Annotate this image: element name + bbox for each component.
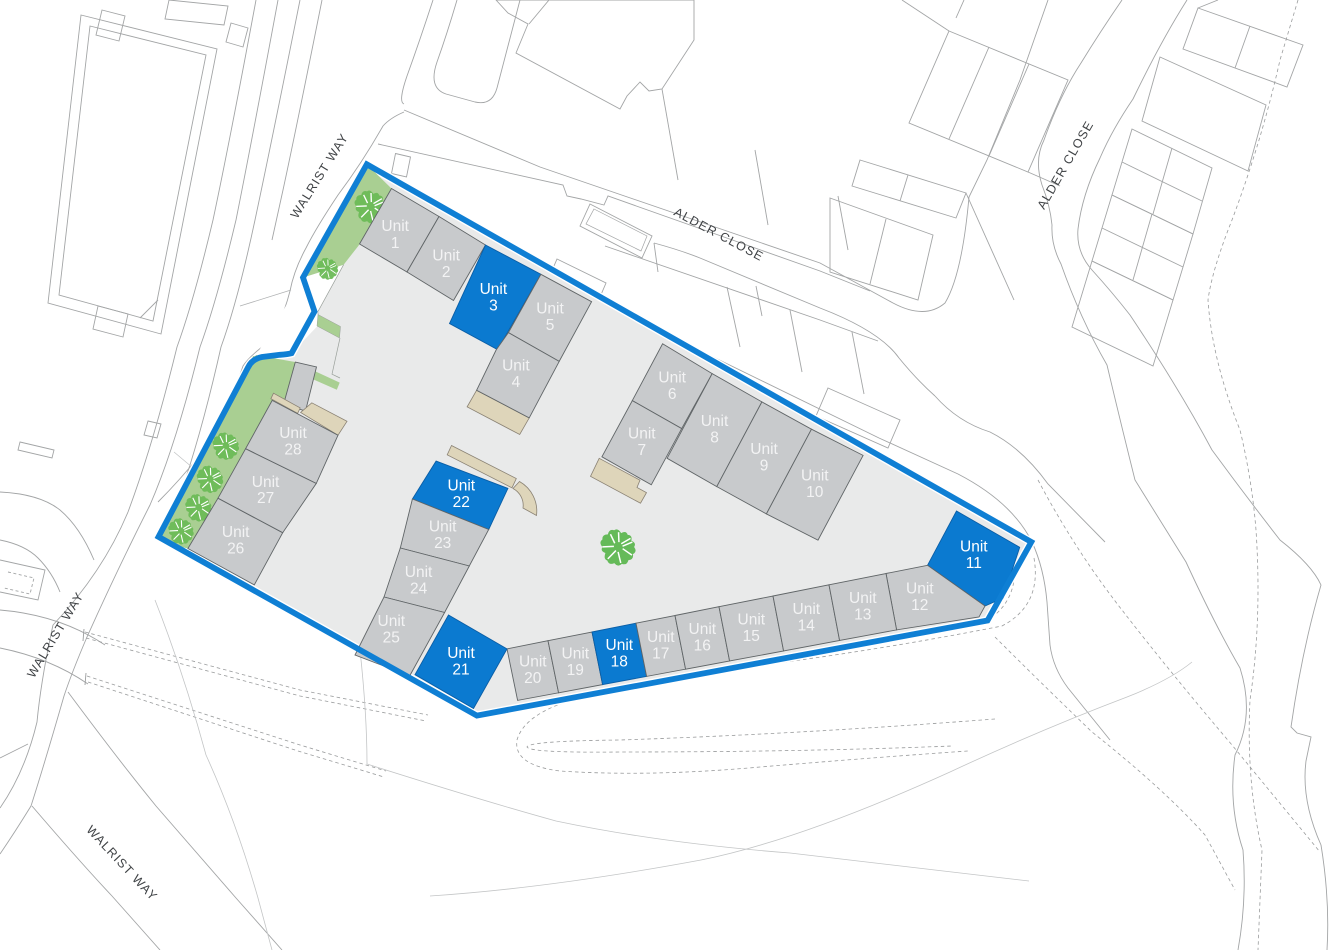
svg-text:Unit: Unit xyxy=(689,621,717,638)
svg-text:4: 4 xyxy=(512,374,521,391)
svg-text:Unit: Unit xyxy=(480,281,508,298)
svg-text:9: 9 xyxy=(760,457,769,474)
svg-text:Unit: Unit xyxy=(222,524,250,541)
svg-text:10: 10 xyxy=(806,484,824,501)
svg-text:Unit: Unit xyxy=(502,357,530,374)
svg-text:5: 5 xyxy=(546,317,555,334)
svg-text:Unit: Unit xyxy=(381,218,409,235)
svg-text:16: 16 xyxy=(694,638,711,655)
svg-text:Unit: Unit xyxy=(906,580,934,597)
svg-text:Unit: Unit xyxy=(658,370,686,387)
svg-text:Unit: Unit xyxy=(448,478,476,495)
svg-text:24: 24 xyxy=(410,580,428,597)
svg-text:18: 18 xyxy=(611,654,628,671)
svg-text:17: 17 xyxy=(652,646,669,663)
svg-text:23: 23 xyxy=(434,535,451,552)
svg-text:3: 3 xyxy=(489,298,498,315)
svg-text:Unit: Unit xyxy=(750,441,778,458)
svg-text:14: 14 xyxy=(798,618,816,635)
svg-text:25: 25 xyxy=(383,630,400,647)
svg-text:27: 27 xyxy=(257,490,274,507)
svg-text:8: 8 xyxy=(710,430,719,447)
svg-text:6: 6 xyxy=(668,386,677,403)
svg-text:21: 21 xyxy=(452,661,469,678)
svg-text:20: 20 xyxy=(524,670,542,687)
svg-text:19: 19 xyxy=(567,662,584,679)
svg-text:Unit: Unit xyxy=(738,612,766,629)
svg-text:1: 1 xyxy=(391,235,400,252)
svg-text:Unit: Unit xyxy=(252,474,280,491)
svg-text:Unit: Unit xyxy=(960,539,988,556)
svg-text:7: 7 xyxy=(637,442,646,459)
svg-text:Unit: Unit xyxy=(647,629,675,646)
svg-text:12: 12 xyxy=(911,597,928,614)
svg-text:Unit: Unit xyxy=(849,590,877,607)
svg-text:Unit: Unit xyxy=(606,637,634,654)
svg-text:Unit: Unit xyxy=(801,468,829,485)
svg-text:Unit: Unit xyxy=(279,425,307,442)
svg-text:2: 2 xyxy=(442,264,451,281)
svg-text:13: 13 xyxy=(854,607,871,624)
svg-text:15: 15 xyxy=(743,628,760,645)
svg-text:Unit: Unit xyxy=(536,301,564,318)
svg-text:Unit: Unit xyxy=(519,654,547,671)
svg-text:11: 11 xyxy=(966,555,982,572)
svg-text:Unit: Unit xyxy=(628,426,656,443)
svg-text:26: 26 xyxy=(227,541,244,558)
svg-text:Unit: Unit xyxy=(429,519,457,536)
svg-text:22: 22 xyxy=(453,494,470,511)
svg-text:Unit: Unit xyxy=(701,413,729,430)
svg-text:Unit: Unit xyxy=(378,613,406,630)
svg-text:Unit: Unit xyxy=(405,564,433,581)
svg-text:Unit: Unit xyxy=(447,645,475,662)
svg-text:Unit: Unit xyxy=(793,601,821,618)
svg-text:28: 28 xyxy=(284,441,301,458)
svg-text:Unit: Unit xyxy=(432,248,460,265)
svg-text:Unit: Unit xyxy=(562,646,590,663)
